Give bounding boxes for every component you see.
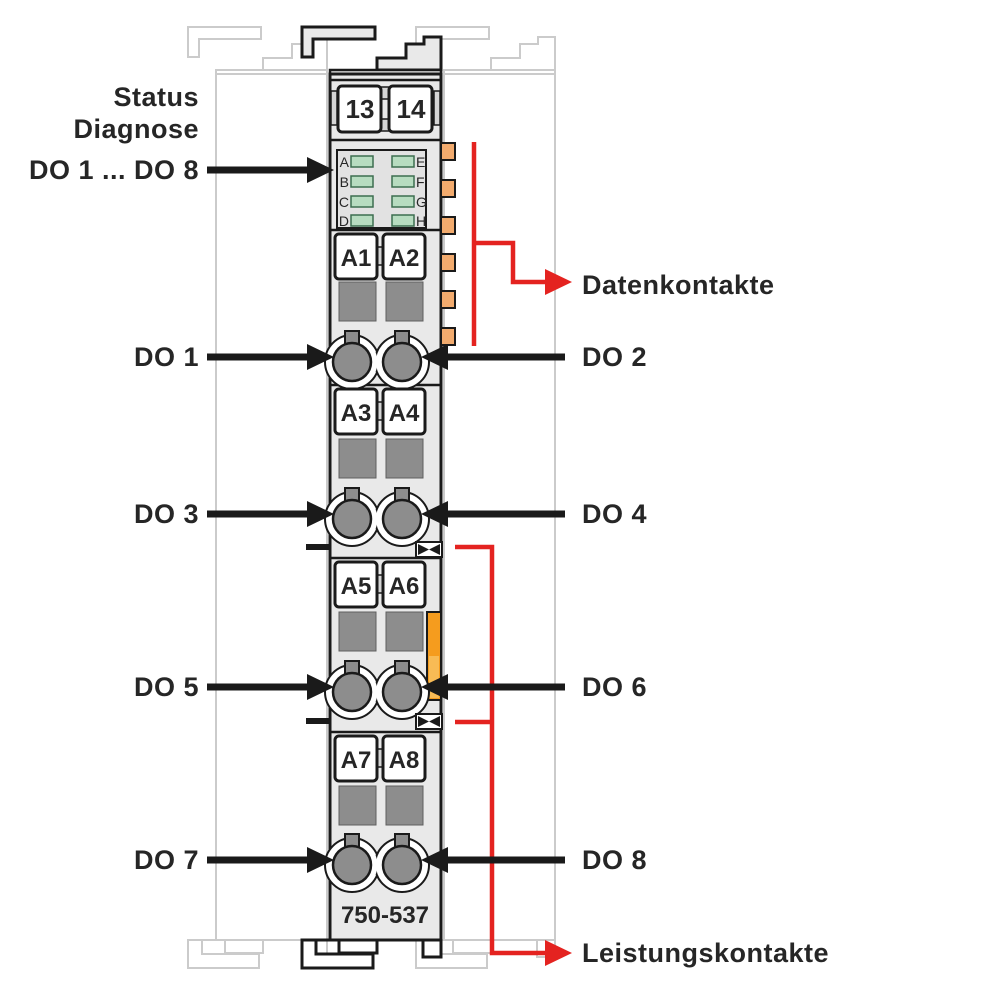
label-datenkontakte: Datenkontakte <box>582 270 775 300</box>
clamp-opening-DO7 <box>333 846 371 884</box>
led-block: A B C D E F G H <box>337 150 427 229</box>
terminal-14-label: 14 <box>397 94 426 124</box>
data-contact-4 <box>441 254 455 271</box>
led-letter-B: B <box>340 174 349 190</box>
top-clip-hook <box>302 27 375 57</box>
terminal-A4-label: A4 <box>389 400 420 427</box>
wire-slot <box>386 612 423 651</box>
wire-slot <box>339 612 376 651</box>
led-D <box>351 215 373 226</box>
terminal-A2-label: A2 <box>389 245 420 272</box>
data-contact-5 <box>441 291 455 308</box>
terminal-A7-label: A7 <box>341 747 372 774</box>
diagram-canvas: 13 14 A B C D E F G H <box>0 0 1000 1000</box>
clamp-opening-DO6 <box>383 673 421 711</box>
led-letter-C: C <box>339 194 349 210</box>
led-letter-F: F <box>416 174 425 190</box>
clamp-opening-DO1 <box>333 343 371 381</box>
clamp-opening-DO8 <box>383 846 421 884</box>
label-do4: DO 4 <box>582 499 647 529</box>
datenkontakte-arrowhead <box>545 269 572 295</box>
bracket-right <box>434 91 440 125</box>
led-B <box>351 176 373 187</box>
terminal-A3-label: A3 <box>341 400 372 427</box>
clamp-opening-DO4 <box>383 500 421 538</box>
label-leistungskontakte: Leistungskontakte <box>582 938 829 968</box>
wire-slot <box>339 282 376 321</box>
wago-module-diagram: 13 14 A B C D E F G H <box>0 0 1000 1000</box>
data-contact-1 <box>441 143 455 160</box>
leistungskontakte-arrowhead <box>545 940 572 966</box>
label-do3: DO 3 <box>134 499 199 529</box>
clamp-opening-DO5 <box>333 673 371 711</box>
terminal-A5-label: A5 <box>341 573 372 600</box>
clamp-opening-DO3 <box>333 500 371 538</box>
bracket-left <box>331 91 337 125</box>
clamp-opening-DO2 <box>383 343 421 381</box>
label-do1: DO 1 <box>134 342 199 372</box>
label-do5: DO 5 <box>134 672 199 702</box>
wire-slot <box>339 439 376 478</box>
led-letter-G: G <box>416 194 427 210</box>
label-do7: DO 7 <box>134 845 199 875</box>
label-status: Status <box>113 82 199 112</box>
part-number: 750-537 <box>341 902 429 929</box>
led-E <box>392 156 414 167</box>
led-letter-A: A <box>340 154 350 170</box>
terminal-13-label: 13 <box>346 94 375 124</box>
led-letter-H: H <box>416 213 426 229</box>
led-letter-D: D <box>339 213 349 229</box>
label-do-range: DO 1 ... DO 8 <box>29 155 199 185</box>
label-do2: DO 2 <box>582 342 647 372</box>
top-clip-steps <box>377 37 441 70</box>
wire-slot <box>339 786 376 825</box>
led-F <box>392 176 414 187</box>
led-C <box>351 196 373 207</box>
wire-slot <box>386 786 423 825</box>
led-H <box>392 215 414 226</box>
wire-slot <box>386 439 423 478</box>
bottom-foot-tab <box>423 940 441 957</box>
label-diagnose: Diagnose <box>73 114 199 144</box>
led-letter-E: E <box>416 154 425 170</box>
label-do6: DO 6 <box>582 672 647 702</box>
terminal-A8-label: A8 <box>389 747 420 774</box>
terminal-A1-label: A1 <box>341 245 372 272</box>
data-contact-3 <box>441 217 455 234</box>
left-jumper-mark-2 <box>306 718 330 724</box>
bottom-foot-notch <box>339 940 377 953</box>
data-contact-6 <box>441 328 455 345</box>
data-contact-2 <box>441 180 455 197</box>
left-jumper-mark-1 <box>306 544 330 550</box>
led-A <box>351 156 373 167</box>
label-do8: DO 8 <box>582 845 647 875</box>
terminal-A6-label: A6 <box>389 573 420 600</box>
led-G <box>392 196 414 207</box>
wire-slot <box>386 282 423 321</box>
